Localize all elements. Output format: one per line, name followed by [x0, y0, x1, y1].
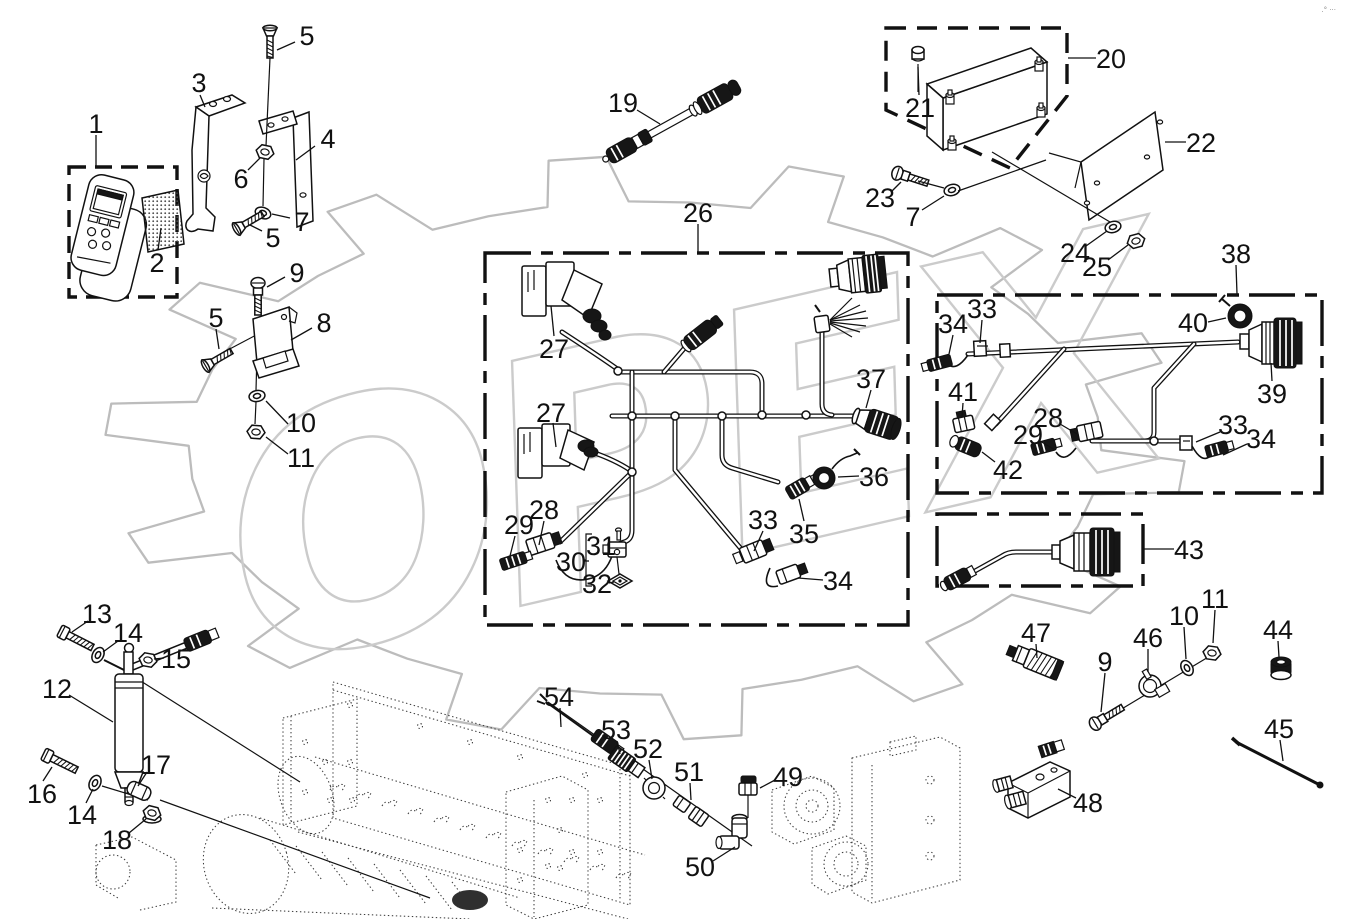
- callout-9: 9: [1097, 647, 1112, 677]
- callout-10: 10: [286, 408, 316, 438]
- leader-40: [1208, 318, 1226, 322]
- callout-43: 43: [1174, 535, 1204, 565]
- callout-23: 23: [865, 183, 895, 213]
- callout-36: 36: [859, 462, 889, 492]
- screw-5-mid: [231, 208, 266, 237]
- callout-41: 41: [948, 377, 978, 407]
- callout-26: 26: [683, 198, 713, 228]
- callout-33: 33: [748, 505, 778, 535]
- callout-10: 10: [1169, 601, 1199, 631]
- fitting-49: [739, 776, 757, 818]
- leader-9: [1101, 673, 1105, 712]
- callout-5: 5: [265, 223, 280, 253]
- callout-6: 6: [233, 164, 248, 194]
- screw-23: [890, 165, 930, 190]
- callout-50: 50: [685, 852, 715, 882]
- bushing-44: [1271, 657, 1291, 680]
- callout-47: 47: [1021, 618, 1051, 648]
- leader-38: [1236, 265, 1237, 294]
- elbow-50: [716, 815, 747, 850]
- callout-21: 21: [905, 93, 935, 123]
- fitting-51b: [688, 806, 709, 827]
- callout-34: 34: [938, 309, 968, 339]
- screw-16: [41, 748, 80, 776]
- callout-18: 18: [102, 825, 132, 855]
- leader-19: [637, 110, 660, 124]
- parts-diagram: OPEX .° ···: [0, 0, 1347, 919]
- callout-29: 29: [504, 510, 534, 540]
- callout-29: 29: [1013, 420, 1043, 450]
- fitting-51a: [673, 795, 691, 813]
- callout-25: 25: [1082, 252, 1112, 282]
- callout-17: 17: [141, 750, 171, 780]
- washer-10-right: [1178, 658, 1196, 677]
- leader-11: [1213, 610, 1215, 643]
- callout-51: 51: [674, 757, 704, 787]
- part-control-unit-20: [927, 48, 1047, 150]
- callout-53: 53: [601, 715, 631, 745]
- callout-27: 27: [539, 334, 569, 364]
- leader-8: [291, 328, 312, 340]
- cap-40: [1219, 295, 1252, 328]
- callout-11: 11: [1201, 584, 1229, 614]
- callout-27: 27: [536, 398, 566, 428]
- leader-33: [1196, 432, 1220, 442]
- callout-35: 35: [789, 519, 819, 549]
- manifold-48: [992, 739, 1070, 818]
- callout-15: 15: [161, 644, 191, 674]
- callout-54: 54: [544, 682, 574, 712]
- callout-19: 19: [608, 88, 638, 118]
- connector-39: [1240, 318, 1302, 368]
- callout-31: 31: [586, 531, 616, 561]
- callout-20: 20: [1096, 44, 1126, 74]
- connector-34-r: [1204, 439, 1234, 458]
- callout-16: 16: [27, 779, 57, 809]
- callout-11: 11: [287, 443, 315, 473]
- pulley-shadow: [452, 890, 488, 910]
- callout-5: 5: [299, 21, 314, 51]
- leader-5: [277, 42, 295, 50]
- callout-12: 12: [42, 674, 72, 704]
- callout-34: 34: [1246, 424, 1276, 454]
- leader-12: [69, 695, 113, 722]
- callout-33: 33: [1218, 410, 1248, 440]
- machine-ghost-drawing: [96, 682, 960, 919]
- leader-7: [272, 214, 290, 218]
- screw-5-top: [263, 25, 277, 58]
- callout-2: 2: [149, 248, 164, 278]
- callout-1: 1: [88, 109, 103, 139]
- leader-6: [248, 158, 260, 170]
- clamp-46: [1139, 669, 1170, 697]
- callout-33: 33: [967, 294, 997, 324]
- callout-34: 34: [823, 566, 853, 596]
- parts-diagram-page: OPEX .° ···: [0, 0, 1347, 919]
- callout-5: 5: [208, 303, 223, 333]
- callout-32: 32: [582, 569, 612, 599]
- screw-9-right: [1087, 701, 1126, 732]
- callout-14: 14: [113, 618, 143, 648]
- callout-40: 40: [1178, 308, 1208, 338]
- callout-4: 4: [320, 124, 335, 154]
- callout-49: 49: [773, 762, 803, 792]
- nut-6: [255, 144, 275, 160]
- callout-37: 37: [856, 364, 886, 394]
- callout-7: 7: [294, 207, 309, 237]
- callout-38: 38: [1221, 239, 1251, 269]
- callout-39: 39: [1257, 379, 1287, 409]
- callout-46: 46: [1133, 623, 1163, 653]
- washer-14b: [87, 773, 104, 792]
- callout-22: 22: [1186, 128, 1216, 158]
- part-cap-21: [912, 47, 924, 62]
- callout-13: 13: [82, 599, 112, 629]
- callout-48: 48: [1073, 788, 1103, 818]
- cable-tie-45: [1232, 738, 1324, 789]
- callout-44: 44: [1263, 615, 1293, 645]
- callout-8: 8: [316, 308, 331, 338]
- callout-52: 52: [633, 734, 663, 764]
- leader-9: [267, 277, 285, 287]
- callout-7: 7: [905, 202, 920, 232]
- nut-52: [643, 777, 665, 799]
- corner-mark: .° ···: [1321, 6, 1336, 14]
- callout-45: 45: [1264, 714, 1294, 744]
- leader-10: [1184, 627, 1186, 659]
- part-bracket-8: [253, 307, 299, 378]
- callout-14: 14: [67, 800, 97, 830]
- callout-3: 3: [191, 68, 206, 98]
- nut-25: [1126, 232, 1147, 249]
- leader-5: [250, 225, 262, 231]
- callout-42: 42: [993, 455, 1023, 485]
- part-remote-control: [63, 172, 156, 304]
- callout-9: 9: [289, 258, 304, 288]
- part-fitting-chain: [537, 694, 757, 849]
- part-contact-pad: [142, 190, 184, 252]
